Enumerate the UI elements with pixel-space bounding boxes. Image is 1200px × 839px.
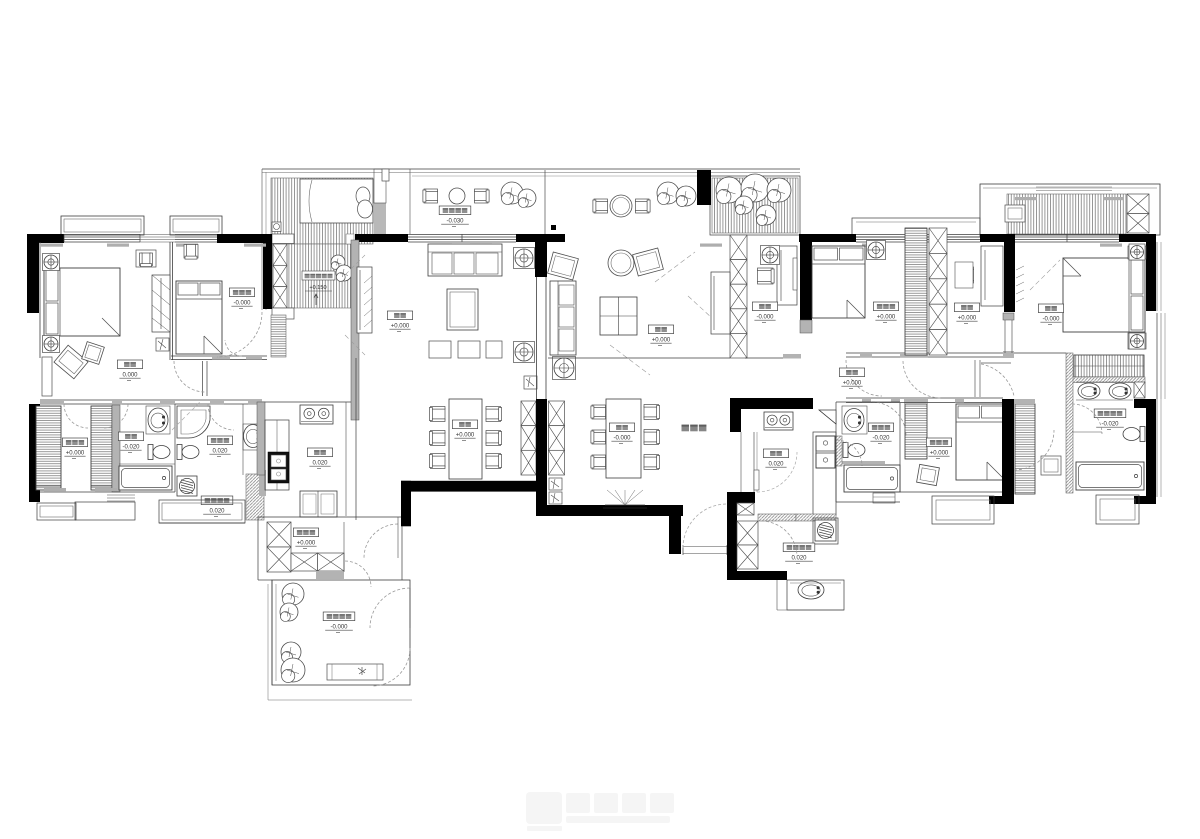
svg-text:0.020: 0.020 — [212, 448, 228, 454]
svg-text:-0.000: -0.000 — [613, 435, 631, 441]
svg-text:-0.000: -0.000 — [233, 300, 251, 306]
svg-text:+0.000: +0.000 — [391, 323, 410, 329]
svg-text:0.020: 0.020 — [312, 460, 328, 466]
svg-text:-0.000: -0.000 — [1042, 316, 1060, 322]
svg-text:+0.000: +0.000 — [297, 540, 316, 546]
svg-text:+0.000: +0.000 — [843, 380, 862, 386]
svg-text:-0.000: -0.000 — [330, 624, 348, 630]
svg-text:-0.020: -0.020 — [122, 444, 140, 450]
svg-text:+0.000: +0.000 — [930, 450, 949, 456]
svg-text:0.000: 0.000 — [122, 372, 138, 378]
svg-text:+0.150: +0.150 — [309, 285, 326, 291]
svg-text:-0.000: -0.000 — [756, 314, 774, 320]
svg-text:0.020: 0.020 — [209, 508, 225, 514]
svg-text:+0.000: +0.000 — [652, 337, 671, 343]
svg-text:-0.020: -0.020 — [1101, 421, 1119, 427]
svg-text:-0.020: -0.020 — [872, 435, 890, 441]
svg-text:+0.000: +0.000 — [877, 314, 896, 320]
svg-text:+0.000: +0.000 — [66, 450, 85, 456]
svg-text:0.020: 0.020 — [768, 461, 784, 467]
svg-text:+0.000: +0.000 — [456, 432, 475, 438]
svg-text:0.020: 0.020 — [791, 555, 807, 561]
svg-text:-0.030: -0.030 — [446, 218, 464, 224]
svg-text:+0.000: +0.000 — [958, 315, 977, 321]
